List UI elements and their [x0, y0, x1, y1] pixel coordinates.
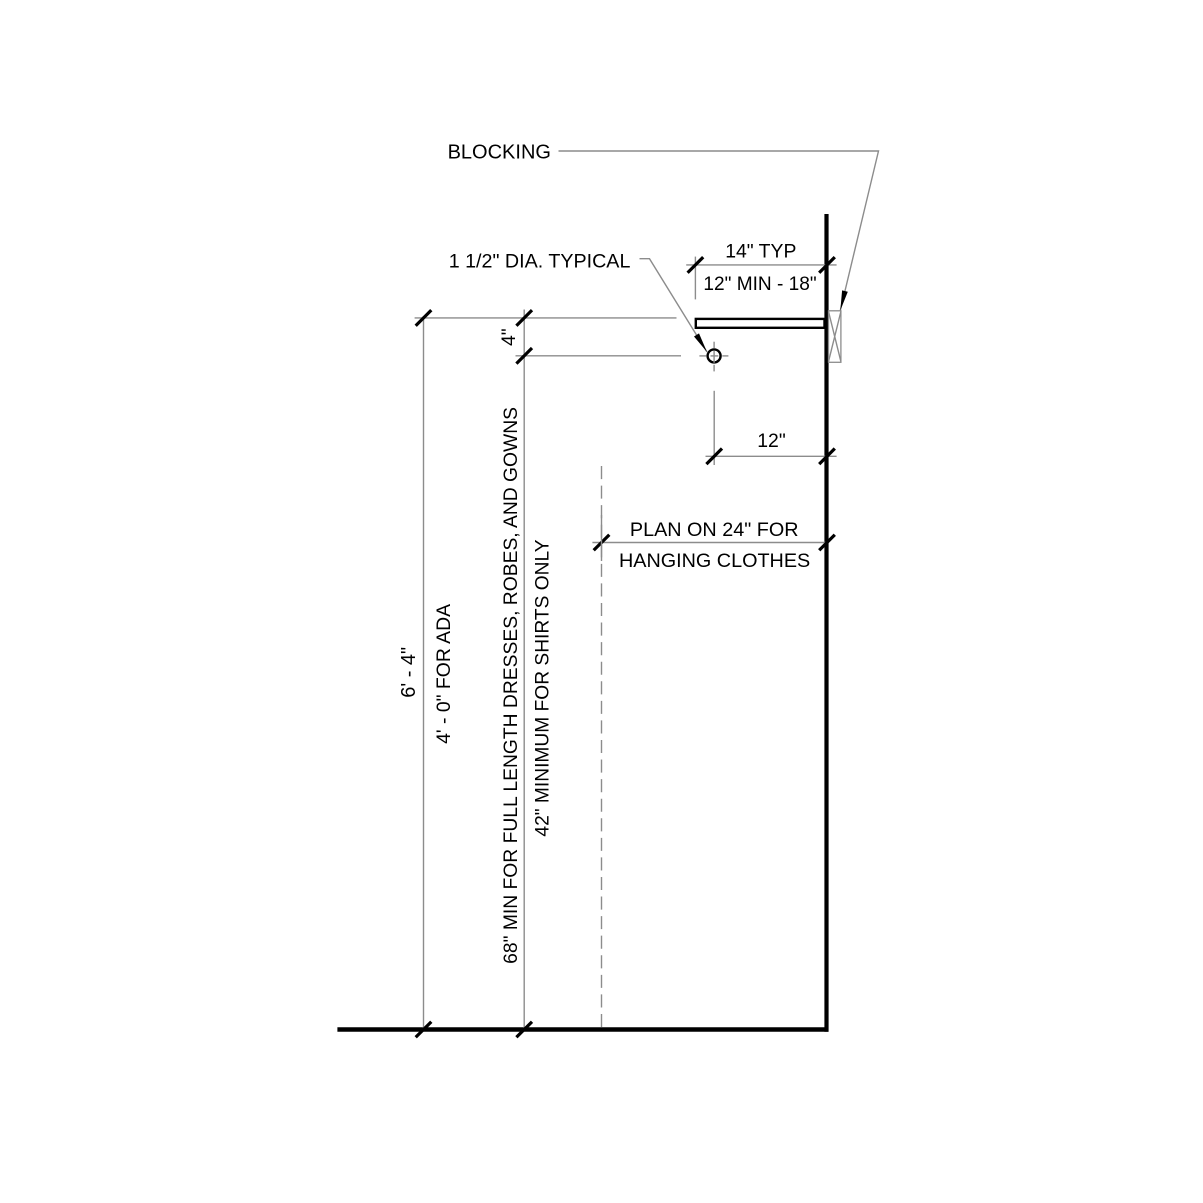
svg-text:HANGING CLOTHES: HANGING CLOTHES — [619, 550, 810, 572]
svg-text:PLAN ON 24" FOR: PLAN ON 24" FOR — [630, 519, 799, 541]
svg-text:6' - 4": 6' - 4" — [398, 647, 420, 698]
svg-text:42" MINIMUM FOR SHIRTS ONLY: 42" MINIMUM FOR SHIRTS ONLY — [533, 539, 554, 836]
svg-text:1 1/2" DIA. TYPICAL: 1 1/2" DIA. TYPICAL — [449, 250, 631, 272]
svg-text:14" TYP: 14" TYP — [725, 241, 796, 263]
svg-text:4": 4" — [498, 328, 520, 346]
svg-text:BLOCKING: BLOCKING — [448, 142, 551, 164]
svg-text:4' - 0" FOR ADA: 4' - 0" FOR ADA — [433, 604, 455, 744]
svg-text:68" MIN FOR FULL LENGTH DRESSE: 68" MIN FOR FULL LENGTH DRESSES, ROBES, … — [501, 407, 522, 964]
svg-text:12" MIN - 18": 12" MIN - 18" — [703, 274, 816, 295]
svg-text:12": 12" — [757, 430, 786, 452]
